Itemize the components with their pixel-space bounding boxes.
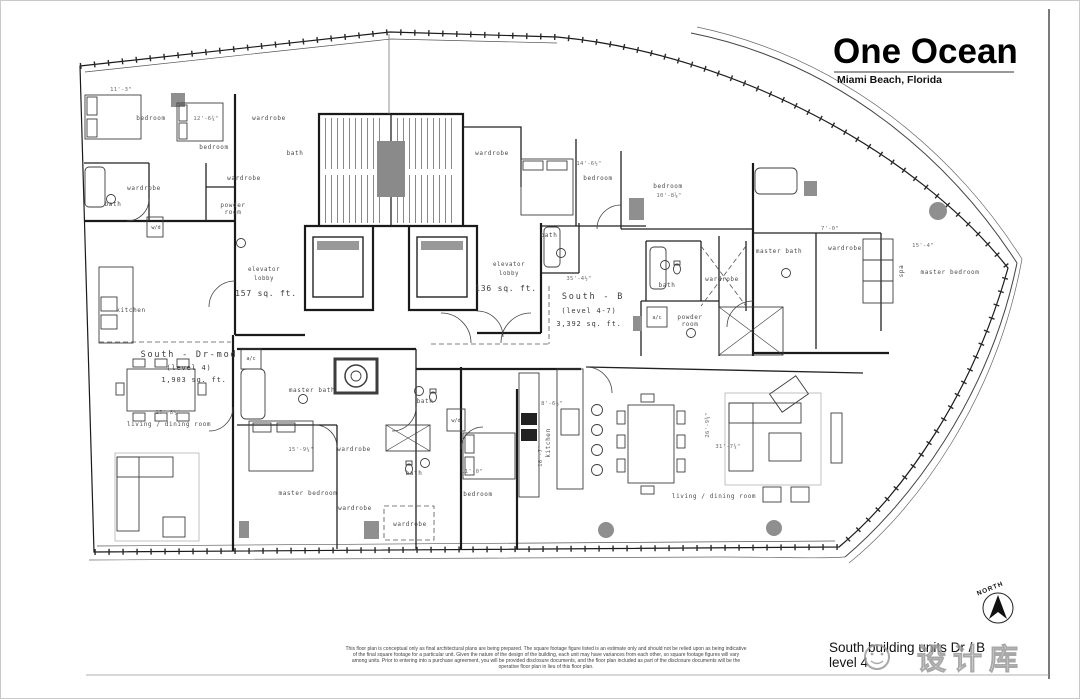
unit-level: (level 4)	[166, 364, 211, 372]
north-arrow: NORTH	[976, 580, 1013, 623]
floor-plan-sheet: bedroom bedroom wardrobe bath wardrobe b…	[0, 0, 1080, 699]
dimension: 12'-6¾"	[193, 116, 218, 122]
dimension: 8'-6½"	[541, 400, 563, 407]
dimension: 11'-0"	[461, 469, 483, 475]
room-label: master bath	[756, 248, 802, 255]
room-label: bath	[417, 398, 434, 405]
furniture	[85, 95, 893, 541]
unit-area: 1,903 sq. ft.	[161, 376, 226, 384]
round-tub	[335, 359, 377, 393]
room-label: a/c	[246, 356, 255, 362]
room-label: wardrobe	[252, 115, 286, 122]
lobby-name: lobby	[499, 271, 519, 277]
room-label: bath	[406, 470, 423, 477]
sheet-title-line2: level 4	[829, 655, 869, 670]
unit-titles: South - Dr-mod (level 4) 1,903 sq. ft. S…	[141, 262, 625, 384]
bathtub	[755, 168, 797, 194]
room-label: bedroom	[653, 183, 683, 190]
room-label: bath	[105, 201, 122, 208]
lobby-name: elevator	[493, 262, 525, 268]
shower	[719, 307, 783, 355]
dimension: 35'-4½"	[566, 275, 591, 282]
lobby-name: elevator	[248, 267, 280, 273]
toilets	[406, 261, 681, 474]
lobby-area: 136 sq. ft.	[475, 284, 537, 293]
title-block: One Ocean Miami Beach, Florida	[833, 32, 1018, 86]
room-label: wardrobe	[705, 276, 739, 283]
unit-name: South - B	[562, 292, 624, 302]
bar-stools	[592, 405, 603, 476]
dimension: 15'-4"	[912, 243, 934, 249]
elevator-cabs	[313, 237, 467, 297]
bed	[177, 103, 223, 141]
room-label: bedroom	[136, 115, 166, 122]
room-label: spa	[898, 265, 905, 278]
dimension: 15'-9¼"	[288, 447, 313, 453]
bathtub	[241, 369, 265, 419]
shower	[386, 425, 430, 451]
dimension: 26'-9¾"	[705, 412, 711, 437]
lobby-area: 157 sq. ft.	[235, 289, 297, 298]
unit-area: 3,392 sq. ft.	[556, 320, 621, 328]
room-label: master bedroom	[921, 269, 980, 276]
stair-core	[323, 118, 457, 223]
room-label: room	[225, 209, 242, 216]
dimension: 31'-7¾"	[715, 444, 740, 450]
dimension: 11'-3"	[110, 87, 132, 93]
dining-table	[617, 394, 685, 494]
room-label: master bath	[289, 387, 335, 394]
tv-console	[863, 239, 893, 303]
bathtub	[85, 167, 105, 207]
room-label: kitchen	[116, 307, 146, 314]
columns	[171, 93, 947, 539]
room-label: powder	[677, 314, 702, 321]
room-label: living / dining room	[127, 421, 211, 428]
room-label: a/c	[652, 315, 661, 321]
room-label: bath	[659, 282, 676, 289]
room-label: wardrobe	[337, 446, 371, 453]
bed	[85, 95, 141, 139]
room-label: wardrobe	[338, 505, 372, 512]
room-label: wardrobe	[127, 185, 161, 192]
room-label: w/d	[151, 225, 160, 231]
room-label: master bedroom	[279, 490, 338, 497]
room-label: bath	[541, 232, 558, 239]
room-label: bath	[287, 150, 304, 157]
sofa-set	[725, 376, 842, 502]
room-label: wardrobe	[227, 175, 261, 182]
bed	[521, 159, 573, 215]
room-label: room	[682, 321, 699, 328]
window-mullion-ticks	[80, 32, 1008, 552]
floor-plan-svg: bedroom bedroom wardrobe bath wardrobe b…	[1, 1, 1080, 699]
room-label: powder	[220, 202, 245, 209]
project-title: One Ocean	[833, 32, 1018, 71]
lobby-name: lobby	[254, 276, 274, 282]
room-label: wardrobe	[828, 245, 862, 252]
unit-level: (level 4-7)	[561, 307, 616, 315]
dimension: 10'-8⅞"	[656, 192, 681, 199]
room-label: w/d	[451, 418, 460, 424]
unit-name: South - Dr-mod	[141, 350, 238, 360]
north-arrow-pointer	[989, 595, 1007, 619]
room-label: bedroom	[463, 491, 493, 498]
watermark-text: 设计库	[917, 642, 1025, 676]
dimension: 17'-8½"	[155, 409, 180, 416]
dimension: 14'-6½"	[576, 160, 601, 167]
bed	[249, 421, 313, 471]
room-label: kitchen	[545, 428, 552, 458]
room-label: wardrobe	[475, 150, 509, 157]
room-label: living / dining room	[672, 493, 756, 500]
sofa-set	[115, 453, 199, 541]
disclaimer-line: operative floor plan in lieu of this flo…	[498, 664, 593, 670]
project-location: Miami Beach, Florida	[837, 74, 942, 86]
disclaimer: This floor plan is conceptual only as fi…	[346, 646, 747, 670]
dimension: 16'-7"	[538, 445, 544, 467]
room-label: bedroom	[583, 175, 613, 182]
room-label: bedroom	[199, 144, 229, 151]
dimension: 7'-0"	[821, 226, 839, 232]
unit-boundary-dashed	[99, 246, 746, 540]
room-label: wardrobe	[393, 521, 427, 528]
